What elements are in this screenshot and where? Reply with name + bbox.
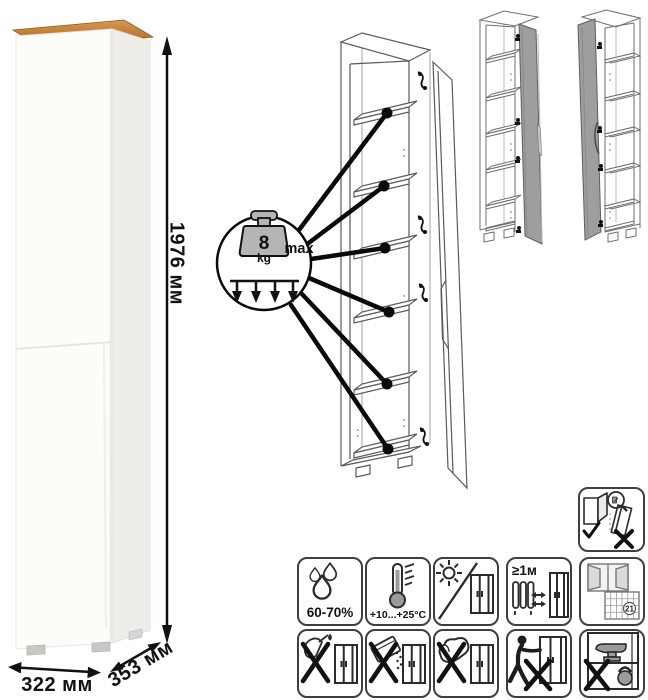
width-dimension-label: 322 мм: [12, 674, 102, 697]
sun-icon: [436, 560, 462, 586]
cabinet-glyph: [540, 637, 566, 683]
temperature-icon: +10...+25°C: [365, 557, 431, 626]
height-dimension-arrow: [162, 36, 172, 644]
kettlebell-icon: [618, 668, 632, 686]
cabinet-glyph: [550, 573, 568, 617]
shelf-dots: [379, 108, 395, 455]
ventilation-calendar-icon: 21: [579, 557, 645, 626]
variant-door-left-drawing: [558, 4, 646, 254]
anvil-icon: [596, 644, 626, 661]
cabinet-front: [16, 29, 112, 649]
anti-tip-wall-mount-icon: [578, 487, 645, 552]
max-label: max: [284, 241, 313, 257]
heat-distance-icon: ≥1м: [506, 557, 572, 626]
product-sheet: 1976 мм 322 мм 353 мм: [0, 0, 648, 700]
no-direct-sunlight-icon: [433, 557, 499, 626]
product-photo: [0, 0, 200, 700]
weight-unit: kg: [257, 251, 271, 265]
calendar-day: 21: [625, 605, 634, 614]
calendar-icon: 21: [605, 592, 639, 619]
no-sharp-tools-icon: [297, 629, 363, 698]
gray-door: [578, 19, 601, 240]
cabinet-side: [112, 29, 150, 643]
gray-door: [519, 24, 542, 244]
no-abrasive-sponge-icon: [433, 629, 499, 698]
radiator-icon: [513, 582, 534, 615]
powder-dots: [396, 652, 402, 669]
no-dragging-icon: [506, 629, 572, 698]
shelf-capacity-diagram: 8 kg max: [200, 15, 490, 515]
no-overload-icon: [579, 629, 645, 698]
humidity-icon: 60-70%: [297, 557, 363, 626]
open-door: [433, 62, 467, 488]
open-cabinet-drawing: [341, 33, 467, 488]
cabinet-glyph: [471, 645, 493, 683]
cabinet-glyph: [403, 645, 425, 683]
cabinet-glyph: [471, 575, 493, 613]
no-abrasive-powder-icon: [365, 629, 431, 698]
hinge-icons: [418, 72, 429, 446]
variant-door-right-drawing: [474, 4, 562, 254]
heat-distance-label: ≥1м: [512, 563, 537, 578]
temperature-label: +10...+25°C: [370, 609, 427, 621]
cabinet-glyph: [335, 645, 357, 683]
max-load-callout: 8 kg max: [217, 211, 314, 310]
open-window-icon: [588, 564, 628, 591]
height-dimension-label: 1976 мм: [165, 219, 188, 309]
humidity-label: 60-70%: [307, 605, 354, 620]
